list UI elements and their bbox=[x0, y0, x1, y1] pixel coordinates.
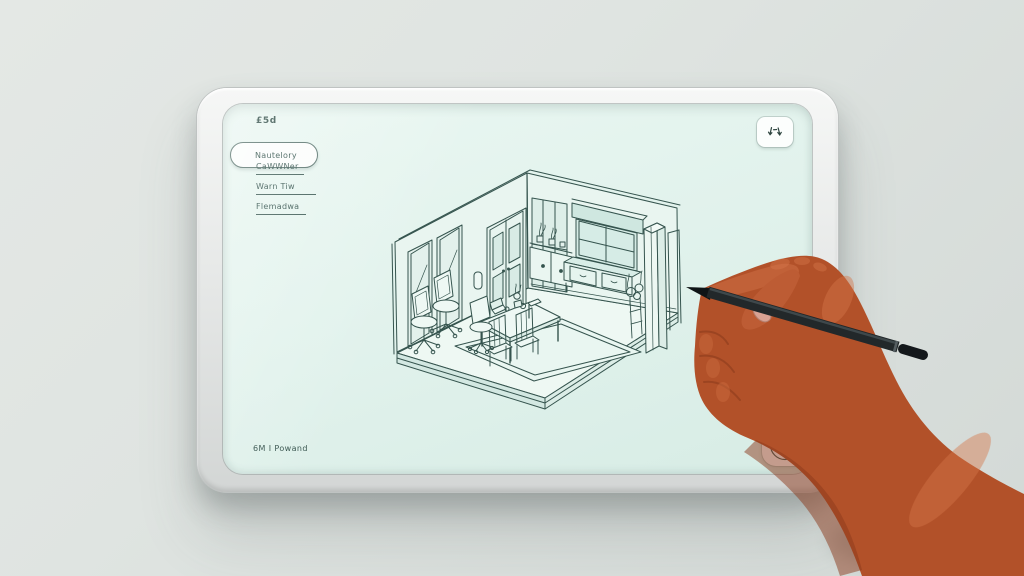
underline bbox=[256, 194, 316, 195]
sidebar-item-1[interactable]: CaWWNer bbox=[256, 162, 316, 175]
tablet-screen[interactable]: £5d Nautelory CaWWNer Warn Tiw Flemadwa bbox=[223, 104, 812, 474]
tablet-frame: £5d Nautelory CaWWNer Warn Tiw Flemadwa bbox=[197, 88, 838, 492]
scene: £5d Nautelory CaWWNer Warn Tiw Flemadwa bbox=[0, 0, 1024, 576]
brand-badge[interactable] bbox=[762, 424, 818, 466]
sidebar-item-2[interactable]: Warn Tiw bbox=[256, 182, 316, 195]
hand-shadow bbox=[830, 506, 1024, 574]
nav-active-label: Nautelory bbox=[255, 151, 297, 160]
resize-arrows-icon bbox=[766, 125, 784, 139]
sidebar-menu: CaWWNer Warn Tiw Flemadwa bbox=[256, 162, 316, 222]
pen-nib-logo-icon bbox=[762, 424, 808, 466]
footer-text: 6M I Powand bbox=[253, 444, 308, 453]
app-logo: £5d bbox=[256, 116, 277, 126]
sidebar-item-3[interactable]: Flemadwa bbox=[256, 202, 316, 215]
resize-button[interactable] bbox=[757, 117, 793, 147]
underline bbox=[256, 174, 304, 175]
underline bbox=[256, 214, 306, 215]
